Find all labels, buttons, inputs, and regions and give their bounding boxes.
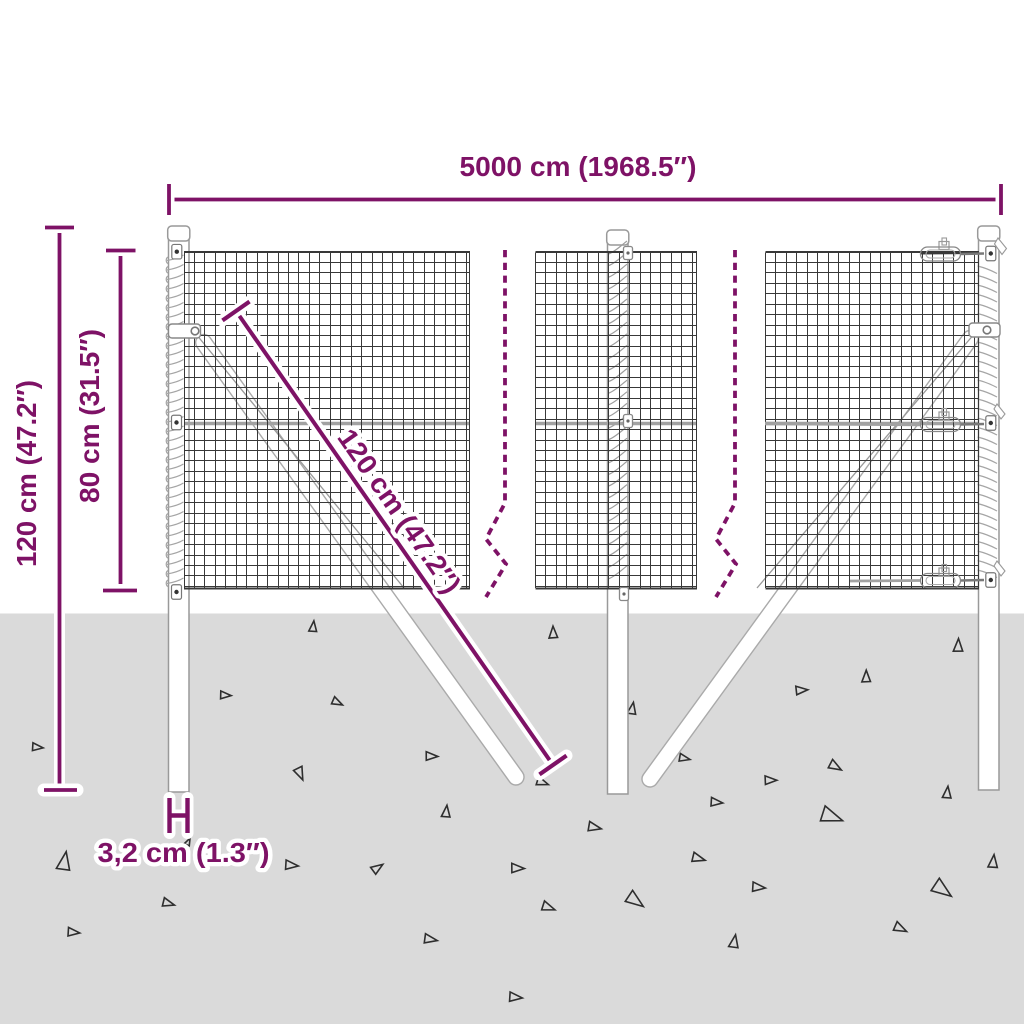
svg-text:80 cm (31.5″): 80 cm (31.5″): [74, 329, 105, 503]
svg-text:5000 cm (1968.5″): 5000 cm (1968.5″): [460, 151, 697, 182]
svg-text:3,2 cm (1.3″): 3,2 cm (1.3″): [98, 837, 270, 868]
svg-text:120 cm (47.2″): 120 cm (47.2″): [11, 380, 42, 567]
